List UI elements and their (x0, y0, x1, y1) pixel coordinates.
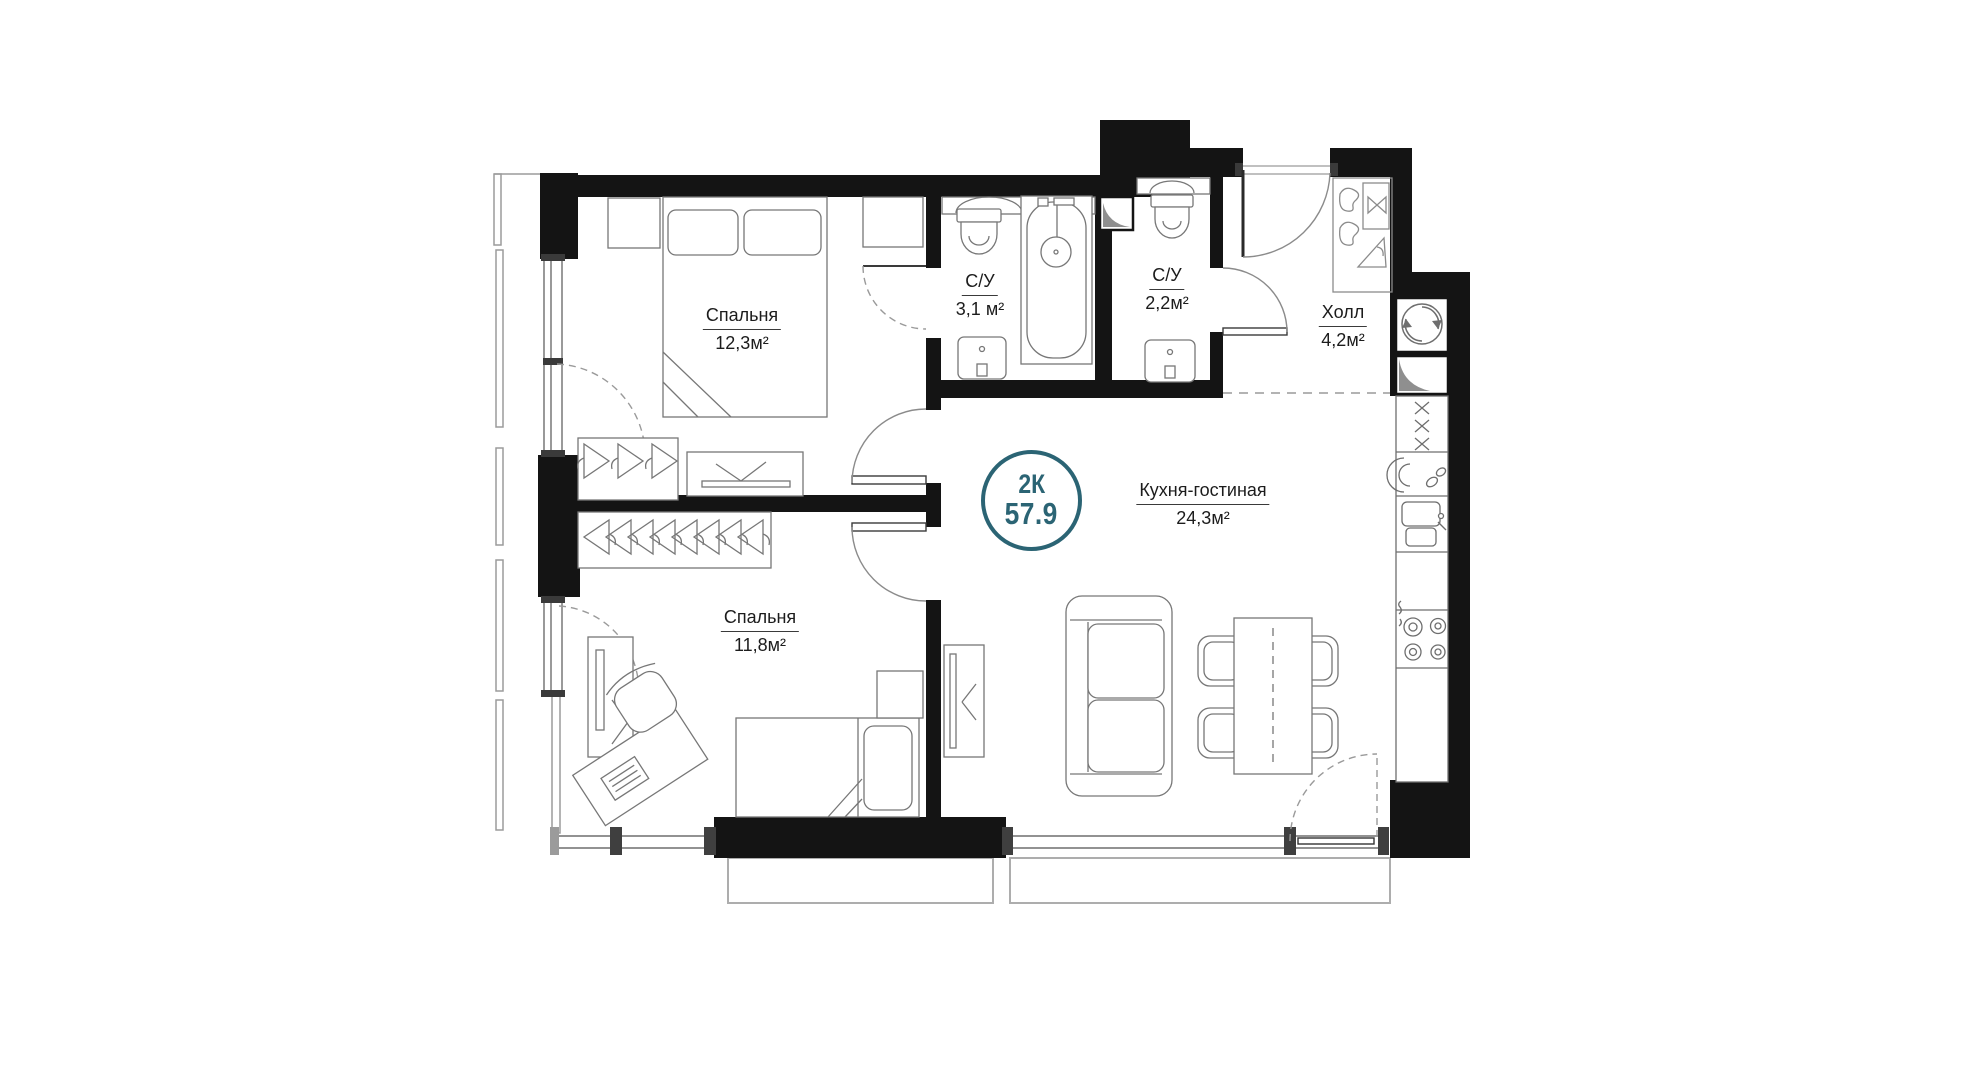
room-area: 12,3м² (703, 333, 781, 354)
tv-console-icon (944, 645, 984, 757)
balcony-living (1010, 858, 1390, 903)
room-name: Спальня (721, 608, 799, 632)
door-ensuite (863, 266, 926, 329)
room-name: С/У (962, 272, 997, 296)
floorplan-page: Спальня 12,3м² С/У 3,1 м² С/У 2,2м² Холл… (0, 0, 1980, 1080)
vanity-counter2-icon (1137, 178, 1210, 194)
window-bedroom2-bottom (550, 827, 716, 855)
toilet-icon (957, 209, 1001, 254)
bedroom2-furniture (543, 512, 923, 826)
wardrobe-bedroom1-icon (578, 438, 678, 500)
window-bedroom1-left (541, 254, 565, 457)
mirror-cabinet-icon (1363, 183, 1389, 229)
vent-shaft-icon (1100, 197, 1133, 230)
door-bedroom1 (852, 409, 926, 484)
balcony-outlines (728, 858, 1390, 903)
room-area: 3,1 м² (956, 299, 1004, 320)
floorplan-drawing (0, 0, 1980, 1080)
room-name: Спальня (703, 306, 781, 330)
hanger-icon (1358, 238, 1386, 267)
room-name: Кухня-гостиная (1136, 481, 1269, 505)
sofa-icon (1066, 596, 1172, 796)
vent-shaft2-icon (1396, 356, 1448, 394)
door-bedroom2 (852, 523, 926, 601)
balcony-bedroom2 (728, 858, 993, 903)
room-label-bedroom1: Спальня 12,3м² (703, 306, 781, 353)
wardrobe-bedroom2-icon (578, 512, 771, 568)
sink-icon (958, 337, 1006, 379)
hall-furniture (1333, 178, 1392, 292)
room-area: 11,8м² (721, 635, 799, 656)
dining-table-icon (1234, 618, 1312, 774)
apartment-type: 2К (1018, 471, 1045, 498)
dresser-icon (863, 197, 923, 247)
apartment-type-badge: 2К 57.9 (981, 450, 1082, 551)
door-bathroom2 (1223, 268, 1287, 335)
dining-set-icon (1198, 618, 1338, 774)
window-bedroom2-left (541, 596, 565, 697)
room-label-kitchen-living: Кухня-гостиная 24,3м² (1136, 481, 1269, 528)
room-label-bathroom2: С/У 2,2м² (1145, 266, 1188, 313)
toilet2-icon (1151, 195, 1193, 238)
window-living-bottom (1002, 827, 1389, 855)
sink2-icon (1145, 340, 1195, 382)
room-area: 24,3м² (1136, 508, 1269, 529)
door-entrance (1235, 163, 1338, 257)
kitchen-counter (1387, 396, 1448, 782)
nightstand2-icon (877, 671, 923, 718)
shoes-icon (1340, 188, 1359, 245)
apartment-total-area: 57.9 (1005, 498, 1058, 531)
room-label-bedroom2: Спальня 11,8м² (721, 608, 799, 655)
living-furniture (944, 596, 1338, 796)
room-label-hall: Холл 4,2м² (1319, 303, 1367, 350)
single-bed-icon (736, 718, 919, 817)
nightstand-icon (608, 198, 660, 248)
bathtub-icon (1021, 196, 1092, 364)
room-name: Холл (1319, 303, 1367, 327)
tv-stand-bedroom1-icon (687, 452, 803, 496)
room-label-bathroom1: С/У 3,1 м² (956, 272, 1004, 319)
room-name: С/У (1149, 266, 1184, 290)
room-area: 2,2м² (1145, 293, 1188, 314)
room-area: 4,2м² (1319, 330, 1367, 351)
desk-chair-icon (543, 658, 715, 825)
